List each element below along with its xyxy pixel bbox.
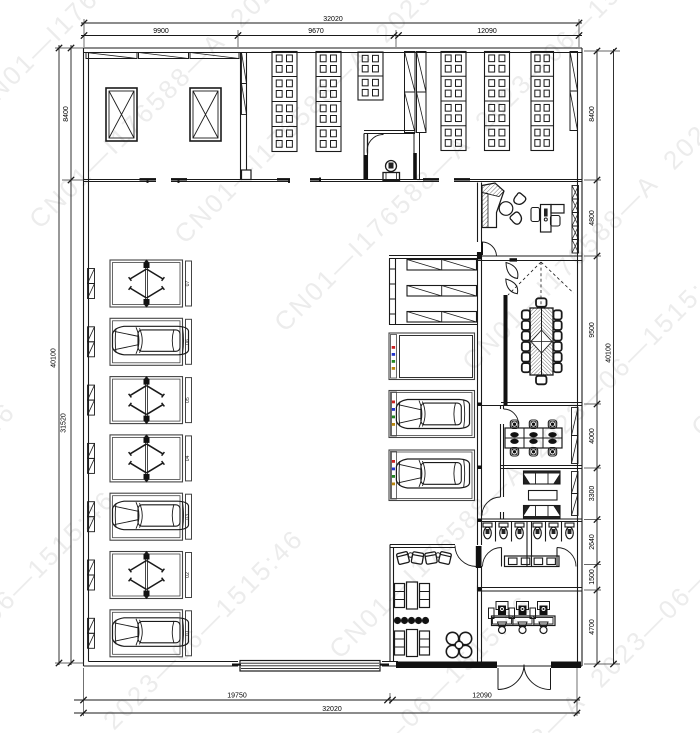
svg-text:32020: 32020 [323, 16, 343, 23]
svg-text:8400: 8400 [63, 106, 70, 122]
svg-text:19750: 19750 [227, 693, 247, 700]
svg-text:1500: 1500 [589, 569, 596, 585]
svg-text:03: 03 [185, 514, 191, 520]
svg-text:12090: 12090 [477, 28, 497, 35]
svg-text:40100: 40100 [51, 348, 58, 368]
svg-text:3300: 3300 [589, 486, 596, 502]
svg-text:9670: 9670 [308, 28, 324, 35]
svg-text:9900: 9900 [153, 28, 169, 35]
svg-text:07: 07 [185, 281, 191, 287]
svg-text:31520: 31520 [61, 413, 68, 433]
svg-text:05: 05 [185, 397, 191, 403]
svg-text:32020: 32020 [322, 706, 342, 713]
svg-text:9500: 9500 [589, 322, 596, 338]
svg-text:2640: 2640 [589, 534, 596, 550]
svg-text:12090: 12090 [472, 693, 492, 700]
svg-text:01: 01 [185, 630, 191, 636]
svg-text:04: 04 [185, 455, 191, 461]
svg-text:4800: 4800 [589, 210, 596, 226]
svg-text:4000: 4000 [589, 428, 596, 444]
svg-text:4700: 4700 [589, 619, 596, 635]
svg-text:06: 06 [185, 339, 191, 345]
svg-text:40100: 40100 [606, 343, 613, 363]
svg-text:02: 02 [185, 572, 191, 578]
svg-text:8400: 8400 [589, 106, 596, 122]
